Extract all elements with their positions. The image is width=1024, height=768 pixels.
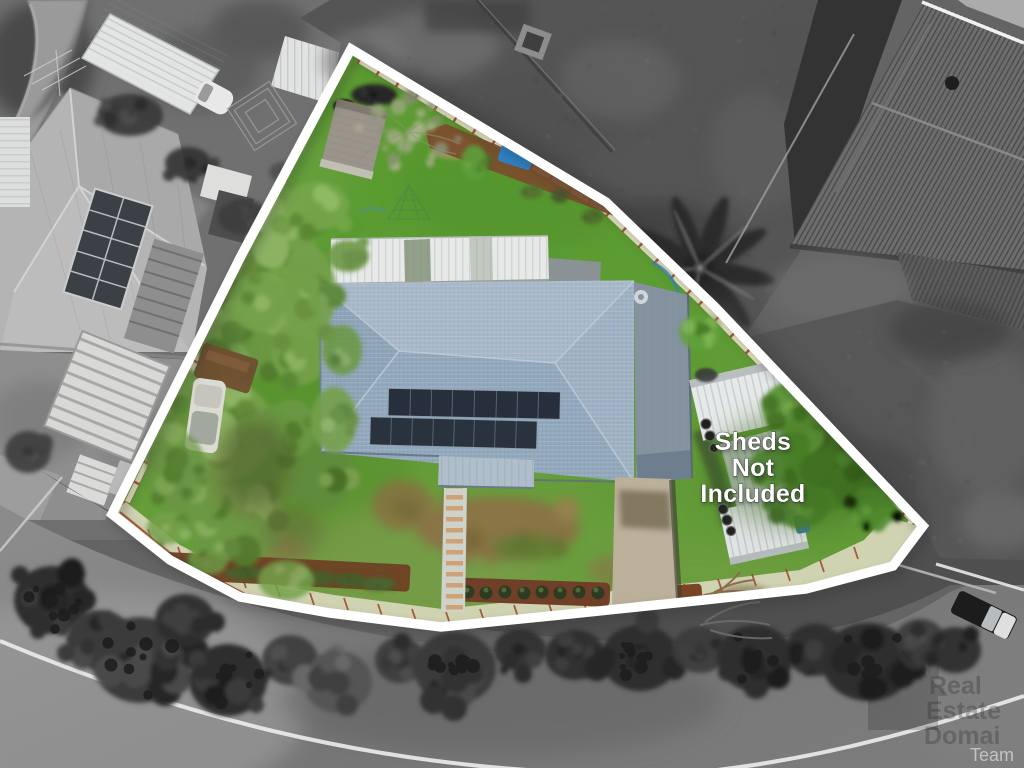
svg-text:Team: Team <box>970 745 1014 765</box>
svg-text:Estate: Estate <box>926 697 1001 725</box>
svg-text:Real: Real <box>929 672 982 700</box>
svg-text:Not: Not <box>732 454 775 482</box>
svg-text:Sheds: Sheds <box>715 428 792 456</box>
svg-text:Included: Included <box>700 480 805 508</box>
